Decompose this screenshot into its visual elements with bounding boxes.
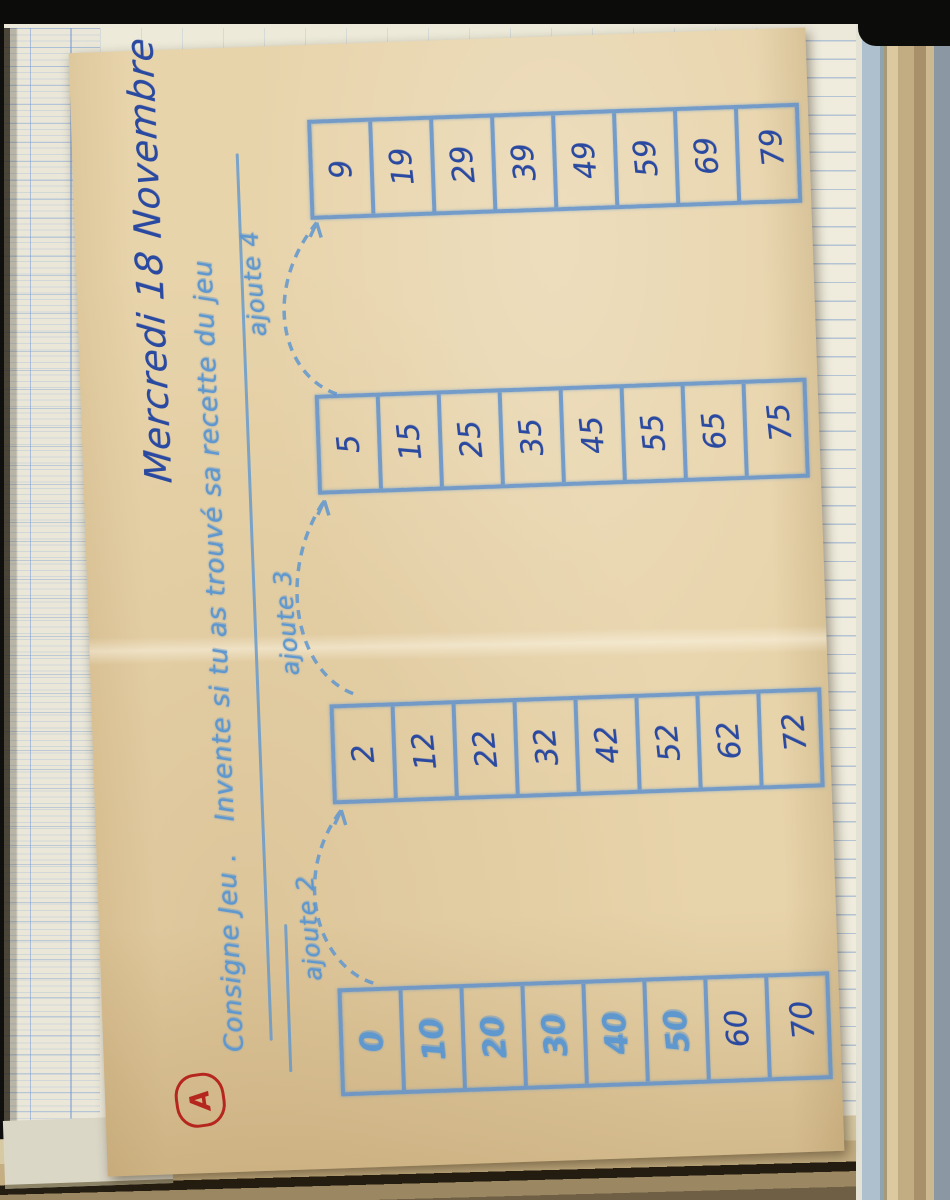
number-cell: 79: [738, 107, 798, 201]
cell-value: 79: [753, 127, 792, 169]
arrowhead: [310, 223, 322, 238]
date-title: Mercredi 18 Novembre: [120, 80, 181, 484]
number-cell: 49: [555, 113, 619, 207]
number-cell: 42: [577, 698, 641, 792]
number-cell: 5: [319, 397, 383, 491]
cell-value: 2: [345, 742, 382, 765]
grade-a-badge: A: [172, 1070, 229, 1130]
number-cell: 32: [517, 700, 581, 794]
number-cell: 52: [638, 696, 702, 790]
cell-value: 32: [527, 726, 566, 768]
arrowhead: [334, 810, 346, 825]
cell-value: 5: [331, 432, 368, 455]
number-cell: 25: [441, 392, 505, 486]
arrowhead: [317, 500, 329, 515]
cell-value: 42: [588, 724, 627, 766]
scanner-background-corner: [858, 0, 950, 46]
number-column-5-series: 515253545556575: [315, 378, 810, 495]
number-cell: 39: [494, 115, 558, 209]
number-cell: 30: [524, 984, 588, 1086]
cell-value: 50: [656, 1007, 696, 1054]
cell-value: 65: [695, 410, 734, 452]
cell-value: 75: [761, 401, 800, 443]
number-column-9-series: 919293949596979: [307, 103, 802, 220]
worksheet-content: A Mercredi 18 Novembre Consigne Jeu . In…: [69, 28, 843, 1175]
number-cell: 69: [677, 109, 741, 203]
grade-letter: A: [183, 1088, 217, 1113]
cell-value: 10: [413, 1016, 453, 1063]
number-cell: 45: [563, 388, 627, 482]
cell-value: 39: [505, 142, 544, 184]
number-cell: 59: [616, 111, 680, 205]
number-column-2-series: 212223242526272: [329, 687, 824, 804]
arrow-label-ajoute-4: ajoute 4: [235, 230, 272, 338]
instruction-label: Consigne Jeu .: [212, 852, 250, 1052]
number-cell: 62: [699, 693, 763, 787]
cell-value: 45: [573, 414, 612, 456]
cell-value: 55: [634, 412, 673, 454]
cell-value: 60: [718, 1008, 757, 1050]
cell-value: 69: [688, 135, 727, 177]
number-cell: 65: [685, 384, 749, 478]
number-cell: 35: [502, 390, 566, 484]
cell-value: 29: [444, 144, 483, 186]
cell-value: 49: [566, 139, 605, 181]
cell-value: 40: [595, 1009, 635, 1056]
number-cell: 72: [760, 691, 820, 785]
number-cell: 20: [463, 986, 527, 1088]
scanned-notebook-page: A Mercredi 18 Novembre Consigne Jeu . In…: [0, 0, 950, 1200]
number-cell: 70: [768, 975, 828, 1077]
number-cell: 9: [311, 122, 375, 216]
cell-value: 0: [353, 1029, 391, 1054]
number-cell: 10: [403, 988, 467, 1090]
cell-value: 25: [451, 419, 490, 461]
number-cell: 15: [380, 394, 444, 488]
cell-value: 20: [474, 1014, 514, 1061]
number-cell: 29: [433, 117, 497, 211]
instruction-underline-short: [284, 924, 292, 1072]
cell-value: 9: [323, 157, 360, 180]
arc-ajoute-4: [281, 222, 337, 396]
cell-value: 70: [783, 999, 822, 1041]
arrow-label-ajoute-3: ajoute 3: [268, 569, 305, 677]
number-cell: 60: [707, 977, 771, 1079]
cell-value: 19: [383, 146, 422, 188]
number-cell: 19: [372, 120, 436, 214]
instruction-text: Invente si tu as trouvé sa recette du je…: [188, 259, 241, 822]
number-cell: 22: [456, 702, 520, 796]
number-cell: 2: [334, 706, 398, 800]
book-page-edges: [856, 14, 950, 1200]
number-column-0-series: 010203040506070: [337, 971, 832, 1096]
cell-value: 22: [466, 728, 505, 770]
cell-value: 15: [390, 421, 429, 463]
cell-value: 59: [627, 137, 666, 179]
cell-value: 30: [535, 1012, 575, 1059]
worksheet-sheet: A Mercredi 18 Novembre Consigne Jeu . In…: [69, 27, 845, 1176]
number-cell: 0: [342, 990, 406, 1092]
number-cell: 55: [624, 386, 688, 480]
cell-value: 12: [405, 730, 444, 772]
number-cell: 40: [585, 982, 649, 1084]
cell-value: 62: [710, 720, 749, 762]
number-cell: 50: [646, 979, 710, 1081]
scanner-background-top: [0, 0, 950, 24]
number-cell: 12: [395, 704, 459, 798]
number-cell: 75: [746, 382, 806, 476]
cell-value: 52: [649, 722, 688, 764]
arrow-label-ajoute-2: ajoute 2: [291, 874, 328, 982]
cell-value: 72: [775, 711, 814, 753]
cell-value: 35: [512, 416, 551, 458]
